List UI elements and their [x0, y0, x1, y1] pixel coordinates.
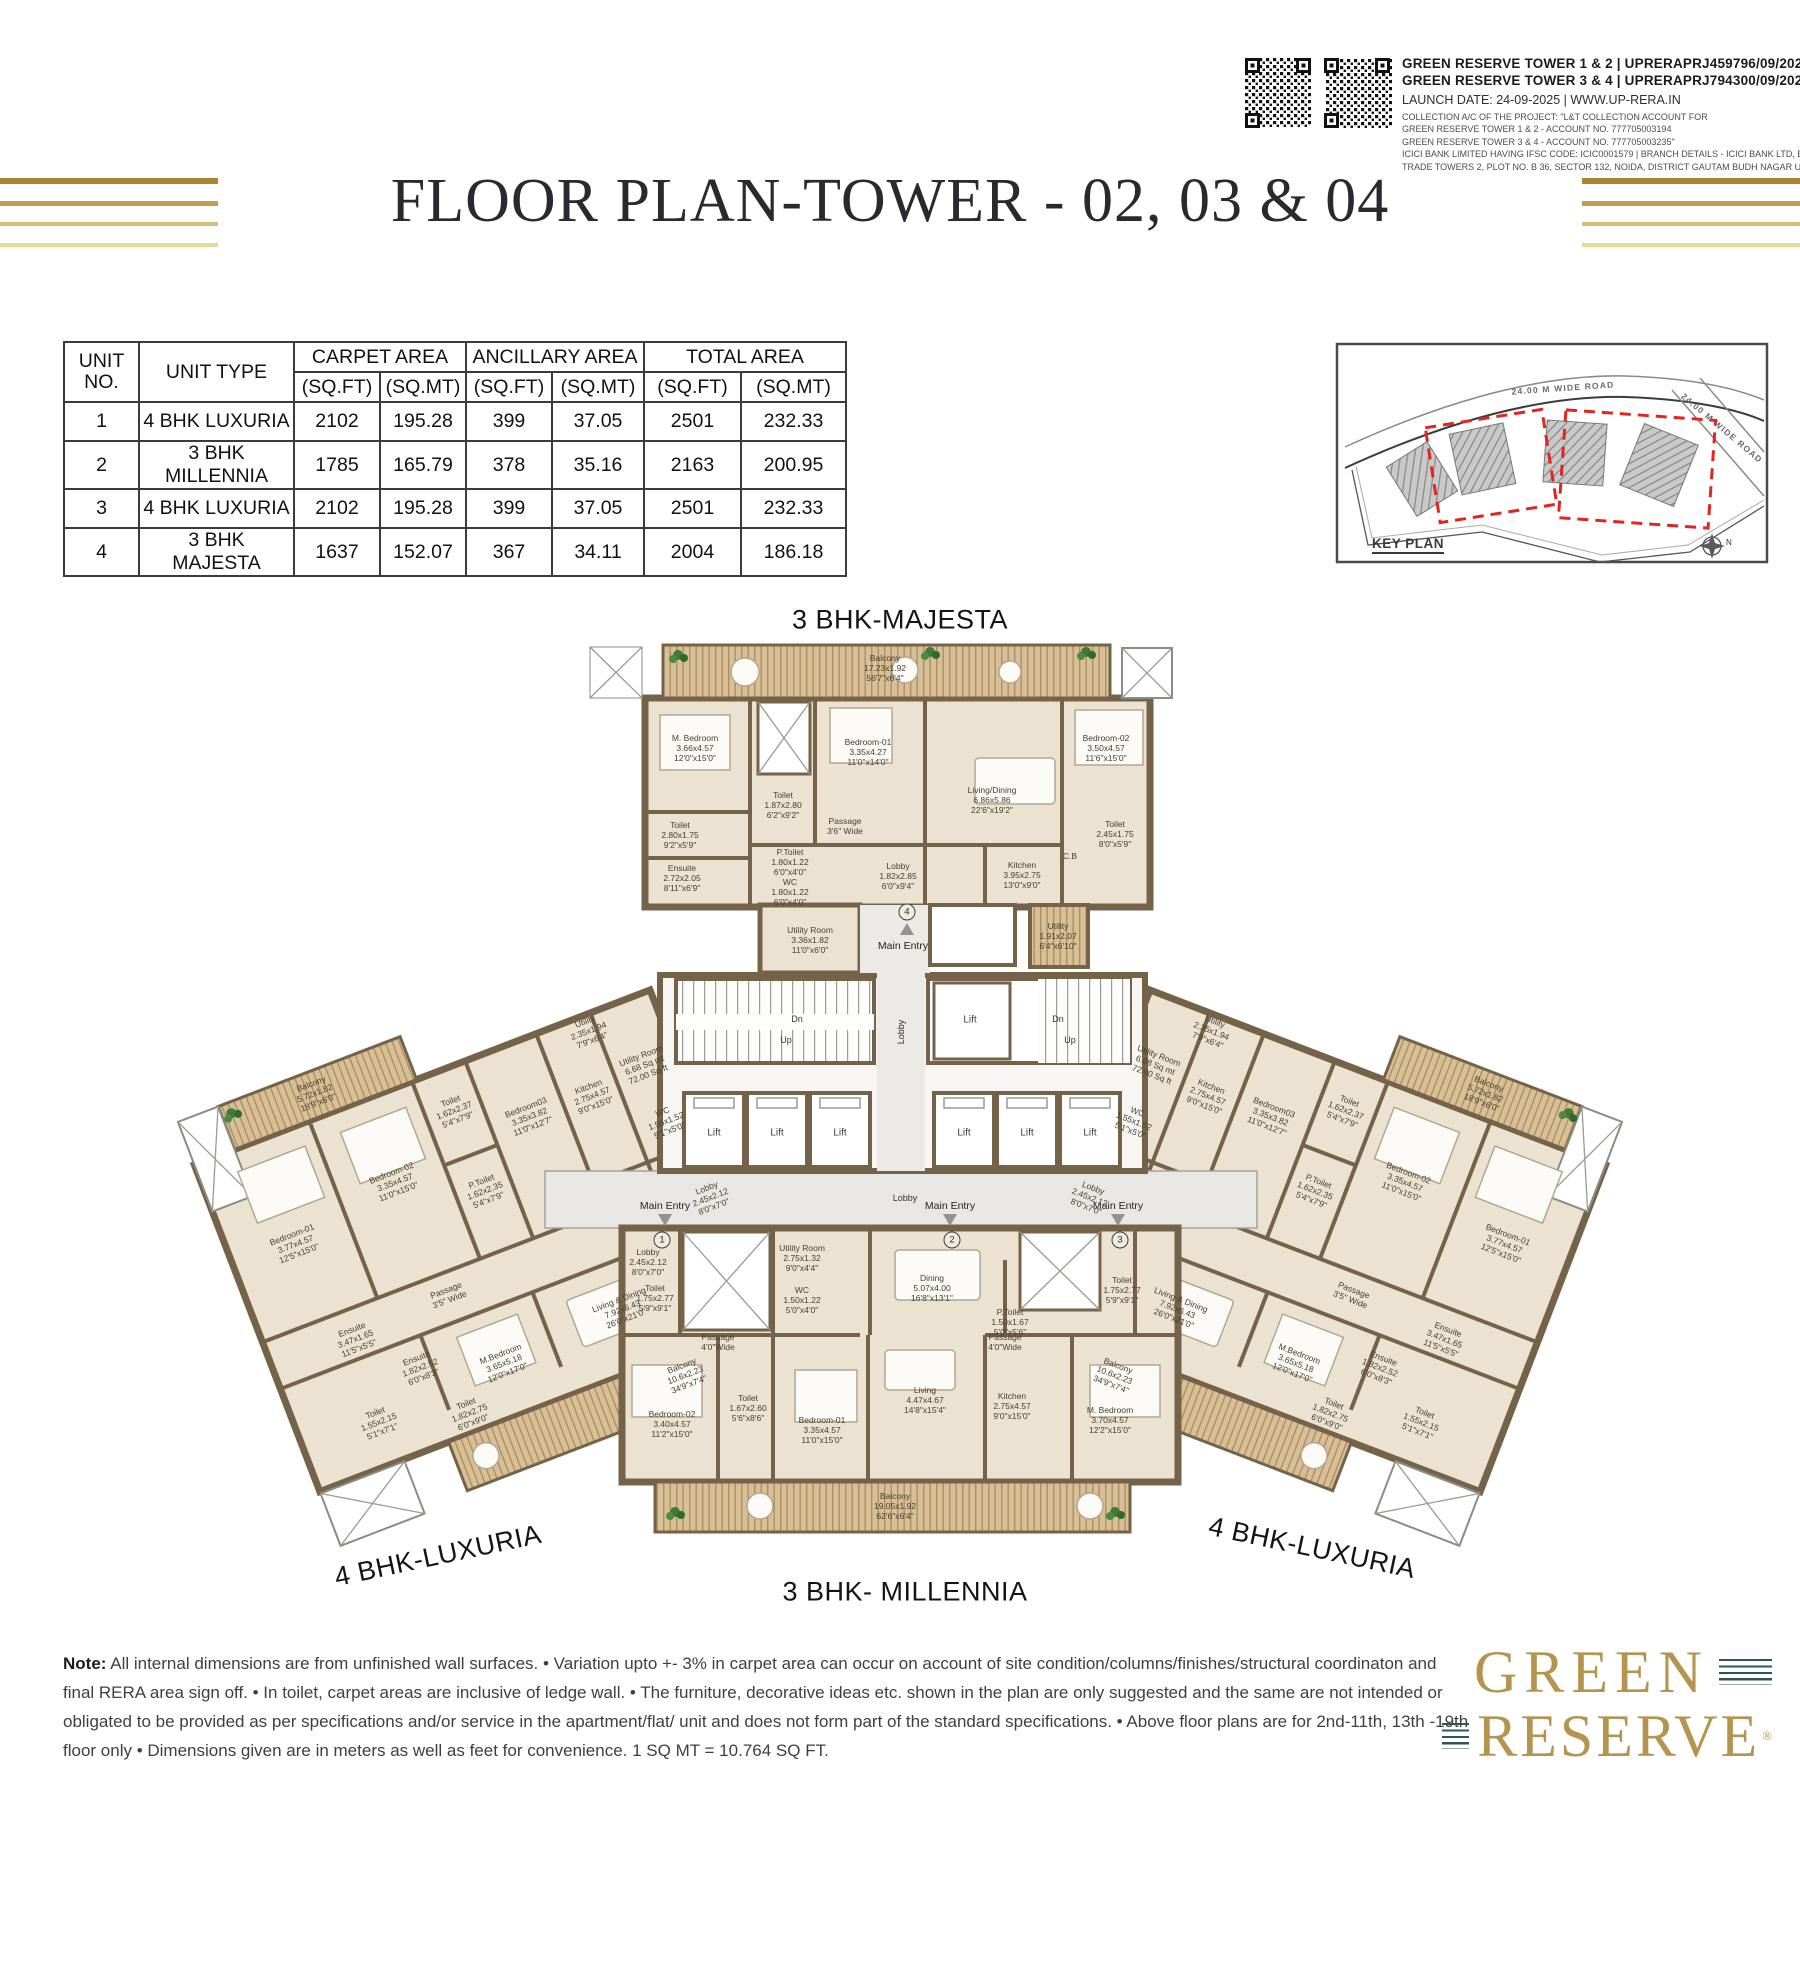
cell: 367 — [466, 528, 552, 576]
cell: 3 — [64, 489, 139, 528]
lobby-label-vertical: Lobby — [896, 1020, 906, 1045]
stair-up-label: Up — [1064, 1035, 1076, 1045]
cell: 399 — [466, 402, 552, 441]
main-entry-label: Main Entry — [640, 1200, 690, 1212]
lift-label: Lift — [1020, 1128, 1033, 1139]
cell: 200.95 — [741, 441, 846, 489]
cell: 232.33 — [741, 489, 846, 528]
unit-millennia — [622, 1228, 1178, 1532]
entry-number-4: 4 — [899, 904, 916, 921]
cell: 152.07 — [380, 528, 466, 576]
rera-line-tower34: GREEN RESERVE TOWER 3 & 4 | UPRERAPRJ794… — [1402, 72, 1762, 89]
stair-dn-label: Dn — [1052, 1014, 1064, 1024]
lift-label: Lift — [707, 1128, 720, 1139]
note-label: Note: — [63, 1654, 106, 1673]
col-header-sqft: (SQ.FT) — [294, 372, 380, 402]
entry-number-3: 3 — [1112, 1232, 1129, 1249]
cell: 1637 — [294, 528, 380, 576]
green-reserve-logo: GREEN RESERVE ® — [1442, 1642, 1772, 1766]
cell: 399 — [466, 489, 552, 528]
area-table: UNIT NO. UNIT TYPE CARPET AREA ANCILLARY… — [63, 341, 847, 577]
col-header-sqmt: (SQ.MT) — [380, 372, 466, 402]
cell: 2 — [64, 441, 139, 489]
north-label: N — [1726, 538, 1732, 547]
table-row: 43 BHK MAJESTA1637152.0736734.112004186.… — [64, 528, 846, 576]
cell: 2501 — [644, 402, 741, 441]
stair-dn-label: Dn — [791, 1014, 803, 1024]
cell: 1785 — [294, 441, 380, 489]
main-entry-arrow-icon — [1111, 1214, 1125, 1226]
qr-code-tower-1-2 — [1245, 58, 1311, 128]
collection-line: GREEN RESERVE TOWER 1 & 2 - ACCOUNT NO. … — [1402, 123, 1762, 136]
cell: 2102 — [294, 402, 380, 441]
table-row: 14 BHK LUXURIA2102195.2839937.052501232.… — [64, 402, 846, 441]
lift-label: Lift — [963, 1015, 976, 1026]
col-header-sqft: (SQ.FT) — [466, 372, 552, 402]
cell: 4 — [64, 528, 139, 576]
cell: 37.05 — [552, 489, 644, 528]
rera-registration-block: GREEN RESERVE TOWER 1 & 2 | UPRERAPRJ459… — [1402, 55, 1762, 174]
col-header-sqmt: (SQ.MT) — [741, 372, 846, 402]
col-group-carpet-area: CARPET AREA — [294, 342, 466, 372]
cell: 186.18 — [741, 528, 846, 576]
cell: 4 BHK LUXURIA — [139, 489, 294, 528]
collection-line: ICICI BANK LIMITED HAVING IFSC CODE: ICI… — [1402, 148, 1762, 161]
stair-up-label: Up — [780, 1035, 792, 1045]
main-entry-label: Main Entry — [1093, 1200, 1143, 1212]
logo-green-text: GREEN — [1474, 1642, 1709, 1702]
unit-title-majesta: 3 BHK-MAJESTA — [792, 605, 1008, 636]
registered-mark: ® — [1762, 1728, 1772, 1744]
col-header-sqft: (SQ.FT) — [644, 372, 741, 402]
note-block: Note: All internal dimensions are from u… — [63, 1650, 1471, 1766]
cell: 4 BHK LUXURIA — [139, 402, 294, 441]
cell: 37.05 — [552, 402, 644, 441]
entry-number-1: 1 — [654, 1232, 671, 1249]
table-row: 23 BHK MILLENNIA1785165.7937835.16216320… — [64, 441, 846, 489]
cell: 3 BHK MAJESTA — [139, 528, 294, 576]
collection-line: GREEN RESERVE TOWER 3 & 4 - ACCOUNT NO. … — [1402, 136, 1762, 149]
main-entry-arrow-icon — [900, 923, 914, 935]
lift-label: Lift — [957, 1128, 970, 1139]
logo-stripes-icon — [1719, 1659, 1772, 1685]
qr-code-tower-3-4 — [1324, 58, 1392, 129]
lift-label: Lift — [833, 1128, 846, 1139]
collection-line: COLLECTION A/C OF THE PROJECT: "L&T COLL… — [1402, 111, 1762, 124]
col-header-unit-no: UNIT NO. — [64, 342, 139, 402]
logo-stripes-icon — [1442, 1723, 1469, 1749]
logo-reserve-text: RESERVE — [1477, 1706, 1760, 1766]
rera-line-tower12: GREEN RESERVE TOWER 1 & 2 | UPRERAPRJ459… — [1402, 55, 1762, 72]
cell: 1 — [64, 402, 139, 441]
cell: 35.16 — [552, 441, 644, 489]
floor-plan-drawing — [0, 0, 1800, 1800]
cell: 165.79 — [380, 441, 466, 489]
lobby-label: Lobby — [893, 1193, 918, 1203]
unit-title-millennia: 3 BHK- MILLENNIA — [782, 1577, 1027, 1608]
entry-number-2: 2 — [944, 1232, 961, 1249]
main-entry-arrow-icon — [943, 1214, 957, 1226]
qr-codes — [1245, 58, 1395, 132]
launch-date-line: LAUNCH DATE: 24-09-2025 | WWW.UP-RERA.IN — [1402, 93, 1762, 107]
note-body: All internal dimensions are from unfinis… — [63, 1654, 1468, 1760]
page-title: FLOOR PLAN-TOWER - 02, 03 & 04 — [240, 166, 1540, 237]
cell: 3 BHK MILLENNIA — [139, 441, 294, 489]
table-row: 34 BHK LUXURIA2102195.2839937.052501232.… — [64, 489, 846, 528]
main-entry-arrow-icon — [658, 1214, 672, 1226]
key-plan-label: KEY PLAN — [1372, 536, 1444, 554]
cell: 232.33 — [741, 402, 846, 441]
gold-rule-left — [0, 178, 218, 247]
unit-majesta — [590, 645, 1172, 973]
col-group-ancillary-area: ANCILLARY AREA — [466, 342, 644, 372]
cell: 2004 — [644, 528, 741, 576]
col-header-sqmt: (SQ.MT) — [552, 372, 644, 402]
cell: 195.28 — [380, 402, 466, 441]
col-header-unit-type: UNIT TYPE — [139, 342, 294, 402]
gold-rule-right — [1582, 178, 1800, 247]
cell: 2102 — [294, 489, 380, 528]
cell: 195.28 — [380, 489, 466, 528]
lift-label: Lift — [1083, 1128, 1096, 1139]
lift-label: Lift — [770, 1128, 783, 1139]
key-plan — [1337, 344, 1767, 562]
cell: 2501 — [644, 489, 741, 528]
cell: 378 — [466, 441, 552, 489]
cell: 34.11 — [552, 528, 644, 576]
brochure-page: { "header": { "reg_line_1": "GREEN RESER… — [0, 0, 1800, 1800]
cell: 2163 — [644, 441, 741, 489]
main-entry-label: Main Entry — [878, 940, 928, 952]
col-group-total-area: TOTAL AREA — [644, 342, 846, 372]
main-entry-label: Main Entry — [925, 1200, 975, 1212]
